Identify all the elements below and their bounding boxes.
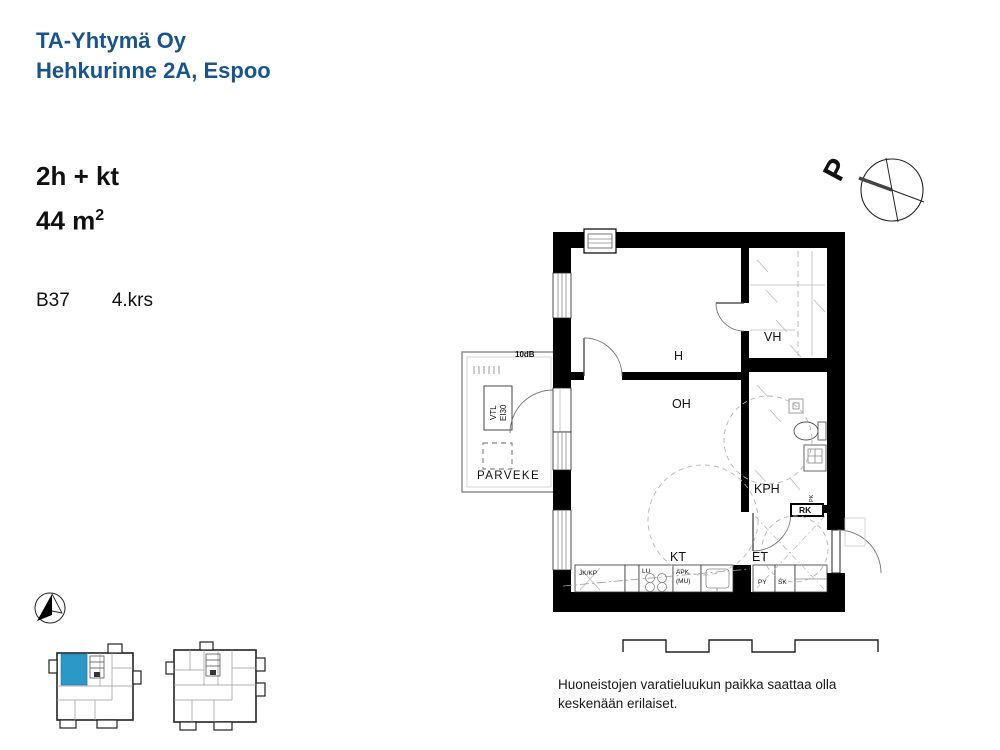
room-label-kph: KPH	[754, 482, 780, 496]
key-plan-left	[49, 644, 141, 728]
sink-icon	[804, 445, 826, 471]
north-compass: P	[817, 153, 924, 222]
electrical-panel: RK	[791, 504, 823, 516]
room-label-et: ET	[752, 550, 768, 564]
windows	[553, 229, 616, 570]
room-label-oh: OH	[672, 397, 691, 411]
balcony-door-opening	[553, 388, 571, 432]
toilet-icon	[794, 422, 826, 440]
window-icon	[553, 510, 571, 570]
north-label: P	[817, 153, 856, 186]
disclaimer-text: Huoneistojen varatieluukun paikka saatta…	[558, 675, 836, 713]
floor-plan-page: TA-Yhtymä Oy Hehkurinne 2A, Espoo 2h + k…	[0, 0, 1000, 750]
scale-bar	[623, 640, 878, 652]
room-label-h: H	[674, 349, 683, 363]
window-icon	[553, 432, 571, 470]
room-label-vh: VH	[764, 330, 781, 344]
floor-plan-svg: P VTL EI30 PARVEKE 10dB	[0, 0, 1000, 750]
fridge-label: JK/KP	[579, 570, 597, 577]
outer-walls	[553, 232, 845, 612]
room-door-icon	[584, 338, 622, 376]
highlighted-unit	[61, 654, 87, 685]
key-plan-right	[166, 642, 265, 730]
sound-rating-label: 10dB	[515, 350, 535, 359]
washer-label: PK	[809, 494, 815, 502]
closet-door-icon	[716, 303, 744, 331]
interior-walls	[553, 248, 845, 592]
closet-detail	[750, 251, 825, 357]
kitchen-row: JK/KP LU APK (MU)	[563, 565, 750, 592]
hatch-label-ei30: EI30	[499, 404, 508, 421]
bathroom-door-icon	[753, 513, 791, 551]
dishwasher-label2: (MU)	[676, 578, 690, 585]
balcony: VTL EI30 PARVEKE 10dB	[462, 350, 556, 492]
window-icon	[553, 273, 571, 318]
north-arrow-icon	[35, 593, 65, 623]
supply-vent-icon	[584, 229, 616, 253]
balcony-label: PARVEKE	[477, 470, 540, 482]
room-label-kt: KT	[670, 550, 686, 564]
hatch-label-vtl: VTL	[489, 405, 498, 420]
rk-label: RK	[799, 505, 812, 515]
hall-cabinets: PY SK	[753, 565, 827, 592]
